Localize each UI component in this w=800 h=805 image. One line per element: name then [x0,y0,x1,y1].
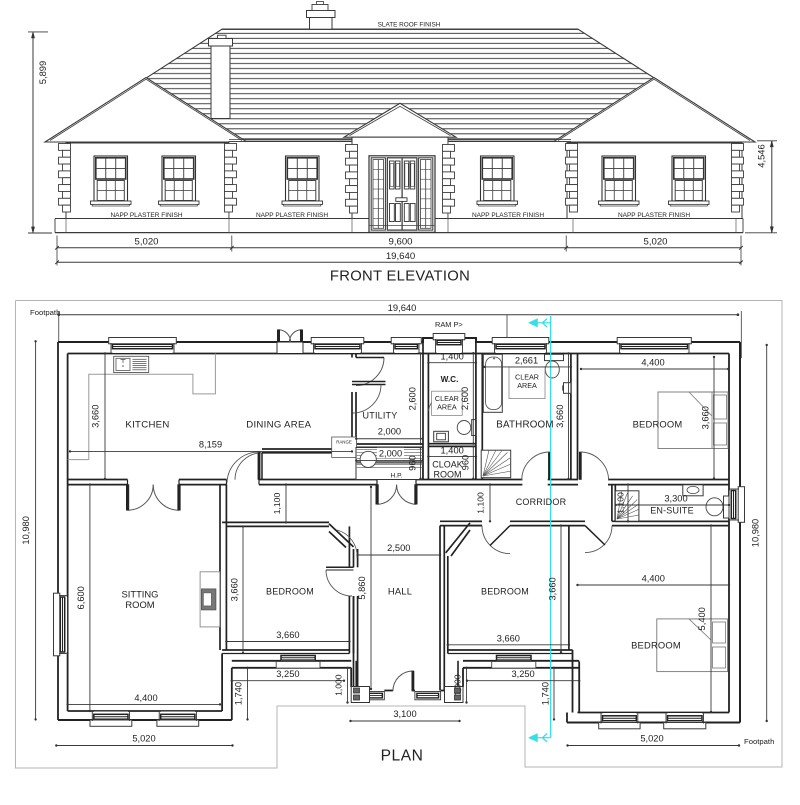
svg-text:4,400: 4,400 [642,574,665,584]
svg-text:NAPP PLASTER FINISH: NAPP PLASTER FINISH [618,212,690,219]
svg-text:3,300: 3,300 [664,493,687,503]
svg-text:CORRIDOR: CORRIDOR [516,497,567,507]
svg-text:8,159: 8,159 [199,439,222,449]
svg-text:EN-SUITE: EN-SUITE [650,506,694,516]
svg-text:NAPP PLASTER FINISH: NAPP PLASTER FINISH [256,212,328,219]
svg-text:RAM P>: RAM P> [435,320,463,329]
svg-text:3,250: 3,250 [511,669,534,679]
svg-text:3,660: 3,660 [229,578,239,601]
svg-text:5,020: 5,020 [134,236,158,247]
svg-text:1,000: 1,000 [453,674,463,696]
svg-text:2,500: 2,500 [387,543,410,553]
svg-text:1,100: 1,100 [272,493,282,515]
svg-text:3,660: 3,660 [91,405,101,428]
svg-text:BEDROOM: BEDROOM [481,586,529,596]
svg-text:5,020: 5,020 [132,734,155,744]
svg-text:1,740: 1,740 [233,682,243,705]
svg-text:3,660: 3,660 [276,630,299,640]
svg-text:3,100: 3,100 [393,709,416,719]
svg-text:BEDROOM: BEDROOM [631,640,681,651]
svg-text:CLOAK: CLOAK [432,460,463,470]
svg-text:DINING AREA: DINING AREA [246,420,311,431]
svg-text:Footpath: Footpath [744,737,774,746]
svg-text:2,000: 2,000 [378,427,401,437]
svg-text:H.P.: H.P. [391,472,403,479]
svg-text:5,899: 5,899 [37,61,48,84]
svg-text:3,660: 3,660 [497,634,520,644]
svg-text:3,660: 3,660 [547,577,557,600]
svg-text:10,980: 10,980 [21,516,31,544]
svg-text:3,660: 3,660 [700,406,710,429]
svg-text:960: 960 [407,455,417,471]
svg-text:RANGE: RANGE [336,440,352,445]
svg-text:4,546: 4,546 [756,144,767,167]
svg-text:Footpath: Footpath [30,308,60,317]
svg-text:6,600: 6,600 [76,586,86,609]
svg-text:HALL: HALL [388,585,412,596]
svg-text:2,600: 2,600 [408,387,418,410]
svg-text:19,640: 19,640 [386,251,415,262]
svg-text:W.C.: W.C. [441,375,459,384]
svg-text:NAPP PLASTER FINISH: NAPP PLASTER FINISH [110,212,182,219]
svg-text:1,100: 1,100 [475,492,485,514]
svg-text:2,000: 2,000 [379,449,402,459]
svg-text:NAPP PLASTER FINISH: NAPP PLASTER FINISH [472,212,544,219]
svg-text:BATHROOM: BATHROOM [496,419,553,430]
svg-text:2,600: 2,600 [460,387,470,410]
svg-text:10,980: 10,980 [751,519,761,547]
svg-text:1,400: 1,400 [441,446,464,456]
svg-text:KITCHEN: KITCHEN [125,420,169,431]
svg-text:1,400: 1,400 [441,352,464,362]
svg-text:1,740: 1,740 [540,682,550,705]
svg-text:5,860: 5,860 [357,576,367,599]
svg-text:19,640: 19,640 [388,302,417,313]
svg-text:9,600: 9,600 [388,236,412,247]
svg-text:3,250: 3,250 [276,669,299,679]
svg-text:UTILITY: UTILITY [363,410,398,420]
svg-text:ROOM: ROOM [125,599,154,610]
svg-text:ROOM: ROOM [434,469,462,479]
svg-text:4,400: 4,400 [641,357,664,367]
svg-text:FRONT ELEVATION: FRONT ELEVATION [330,269,470,285]
svg-text:2,661: 2,661 [515,355,538,365]
svg-text:4,400: 4,400 [134,693,157,703]
svg-text:5,020: 5,020 [643,236,667,247]
svg-text:AREA: AREA [437,403,457,412]
svg-text:960: 960 [460,455,470,471]
svg-text:AREA: AREA [517,381,537,390]
svg-text:1,100: 1,100 [615,492,625,514]
svg-text:5,020: 5,020 [640,734,663,744]
svg-text:BEDROOM: BEDROOM [633,418,683,429]
svg-text:PLAN: PLAN [381,748,424,765]
svg-text:3,660: 3,660 [555,405,565,428]
svg-text:1,000: 1,000 [334,674,344,696]
svg-text:BEDROOM: BEDROOM [266,586,314,596]
svg-text:SLATE ROOF FINISH: SLATE ROOF FINISH [378,22,441,29]
svg-text:5,400: 5,400 [697,607,707,630]
